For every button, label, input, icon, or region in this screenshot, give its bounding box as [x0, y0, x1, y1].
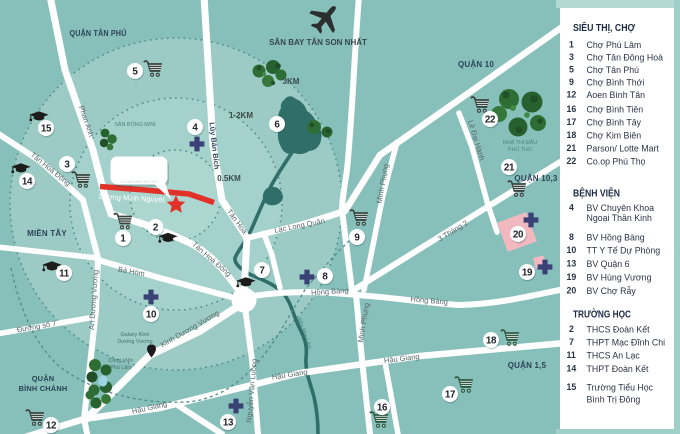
svg-text:QUẬN TÂN PHÚ: QUẬN TÂN PHÚ [70, 29, 127, 38]
svg-text:BV Quận 6: BV Quận 6 [587, 259, 630, 269]
svg-text:11: 11 [567, 350, 576, 360]
svg-text:Parson/ Lotte Mart: Parson/ Lotte Mart [587, 144, 660, 154]
svg-text:10: 10 [567, 245, 577, 255]
svg-text:20: 20 [513, 230, 524, 241]
svg-text:BV Hùng Vương: BV Hùng Vương [587, 273, 652, 283]
svg-text:1-2KM: 1-2KM [229, 111, 253, 120]
svg-text:THPT Đoàn Kết: THPT Đoàn Kết [587, 364, 649, 374]
svg-text:Co.op Phú Thọ: Co.op Phú Thọ [587, 157, 646, 167]
svg-text:19: 19 [567, 272, 577, 282]
svg-text:3KM: 3KM [283, 77, 300, 86]
svg-text:4: 4 [569, 203, 574, 213]
svg-text:QUẬN 1,5: QUẬN 1,5 [508, 361, 547, 370]
svg-text:1: 1 [120, 234, 126, 245]
svg-text:8: 8 [569, 232, 574, 242]
svg-text:THPT Mạc Đĩnh Chi: THPT Mạc Đĩnh Chi [587, 338, 666, 348]
svg-text:NHÀ THI ĐẤU: NHÀ THI ĐẤU [503, 139, 537, 146]
svg-text:14: 14 [22, 177, 33, 188]
svg-text:PHÚ THỌ: PHÚ THỌ [508, 146, 532, 153]
svg-text:7: 7 [259, 266, 265, 277]
svg-text:0.5KM: 0.5KM [217, 174, 241, 183]
svg-text:BV Chuyên Khoa: BV Chuyên Khoa [587, 203, 655, 213]
svg-text:SIÊU THỊ, CHỢ: SIÊU THỊ, CHỢ [573, 21, 635, 34]
svg-text:Aoen Bình Tân: Aoen Bình Tân [587, 90, 646, 100]
svg-text:MIỀN TÂY: MIỀN TÂY [27, 228, 67, 238]
svg-text:15: 15 [567, 382, 577, 392]
svg-text:13: 13 [567, 259, 577, 269]
svg-text:11: 11 [59, 269, 70, 280]
svg-text:TRƯỜNG HỌC: TRƯỜNG HỌC [573, 308, 631, 321]
svg-text:Chợ Kim Biên: Chợ Kim Biên [587, 131, 642, 141]
svg-text:QUẬN: QUẬN [32, 374, 55, 383]
svg-text:5: 5 [132, 67, 138, 78]
svg-text:Phú Lâm: Phú Lâm [110, 365, 132, 371]
svg-text:12: 12 [46, 421, 57, 432]
svg-text:17: 17 [445, 390, 456, 401]
svg-text:TT Y Tế Dự Phòng: TT Y Tế Dự Phòng [587, 246, 661, 256]
svg-text:3: 3 [569, 52, 574, 62]
svg-text:BV Hồng Bàng: BV Hồng Bàng [587, 233, 645, 243]
svg-text:20: 20 [567, 286, 577, 296]
svg-text:2: 2 [153, 223, 159, 234]
svg-text:Trường Tiểu Học: Trường Tiểu Học [587, 383, 654, 393]
svg-text:22: 22 [567, 156, 577, 166]
svg-text:BỆNH VIỆN: BỆNH VIỆN [573, 187, 620, 200]
svg-text:QUẬN 10,3: QUẬN 10,3 [514, 174, 557, 183]
svg-text:Dương Vương: Dương Vương [117, 339, 152, 345]
svg-text:4: 4 [192, 123, 198, 134]
svg-text:Công Viên: Công Viên [108, 358, 133, 364]
svg-text:14: 14 [567, 364, 577, 374]
svg-text:Chợ Tân Phú: Chợ Tân Phú [587, 65, 640, 75]
svg-text:7: 7 [569, 337, 574, 347]
svg-text:SÂN BÓNG MINI: SÂN BÓNG MINI [114, 121, 155, 128]
svg-text:18: 18 [567, 130, 577, 140]
svg-text:9: 9 [354, 233, 360, 244]
svg-text:Galaxy Kinh: Galaxy Kinh [120, 332, 149, 338]
svg-text:6: 6 [274, 120, 280, 131]
svg-text:LƯƠNG MINH NGUYỆT: LƯƠNG MINH NGUYỆT [120, 179, 157, 184]
svg-text:Chợ Bình Tiên: Chợ Bình Tiên [587, 105, 644, 115]
svg-text:BV Chợ Rẫy: BV Chợ Rẫy [587, 286, 637, 296]
svg-text:8: 8 [322, 272, 328, 283]
svg-text:3: 3 [64, 160, 70, 171]
svg-text:SÂN BAY TÂN SON NHẤT: SÂN BAY TÂN SON NHẤT [269, 37, 367, 47]
svg-text:Chợ Bình Thới: Chợ Bình Thới [587, 78, 645, 88]
svg-text:10: 10 [146, 310, 157, 321]
svg-text:18: 18 [486, 336, 497, 347]
svg-text:Ngoại Thần Kinh: Ngoại Thần Kinh [587, 213, 652, 223]
svg-text:5: 5 [569, 65, 574, 75]
svg-text:2: 2 [569, 324, 574, 334]
svg-text:THCS An Lạc: THCS An Lạc [587, 351, 641, 361]
svg-text:17: 17 [567, 117, 577, 127]
svg-text:THCS Đoàn Kết: THCS Đoàn Kết [587, 325, 651, 335]
svg-text:Bình Trị Đông: Bình Trị Đông [587, 395, 641, 405]
svg-text:21: 21 [504, 163, 515, 174]
svg-text:Chợ Tân Đông Hoà: Chợ Tân Đông Hoà [587, 53, 664, 63]
svg-text:QUẬN 10: QUẬN 10 [458, 60, 494, 69]
svg-text:16: 16 [377, 403, 388, 414]
svg-text:Chợ Bình Tây: Chợ Bình Tây [587, 118, 642, 128]
svg-text:9: 9 [569, 77, 574, 87]
svg-text:15: 15 [41, 124, 52, 135]
svg-text:Chợ Phú Lâm: Chợ Phú Lâm [587, 40, 642, 50]
svg-text:21: 21 [567, 143, 577, 153]
svg-text:BÌNH CHÁNH: BÌNH CHÁNH [19, 384, 68, 393]
svg-text:12: 12 [567, 90, 577, 100]
svg-text:16: 16 [567, 104, 577, 114]
svg-text:1: 1 [569, 40, 574, 50]
svg-text:13: 13 [223, 418, 234, 429]
svg-text:22: 22 [485, 115, 496, 126]
svg-text:19: 19 [522, 268, 533, 279]
